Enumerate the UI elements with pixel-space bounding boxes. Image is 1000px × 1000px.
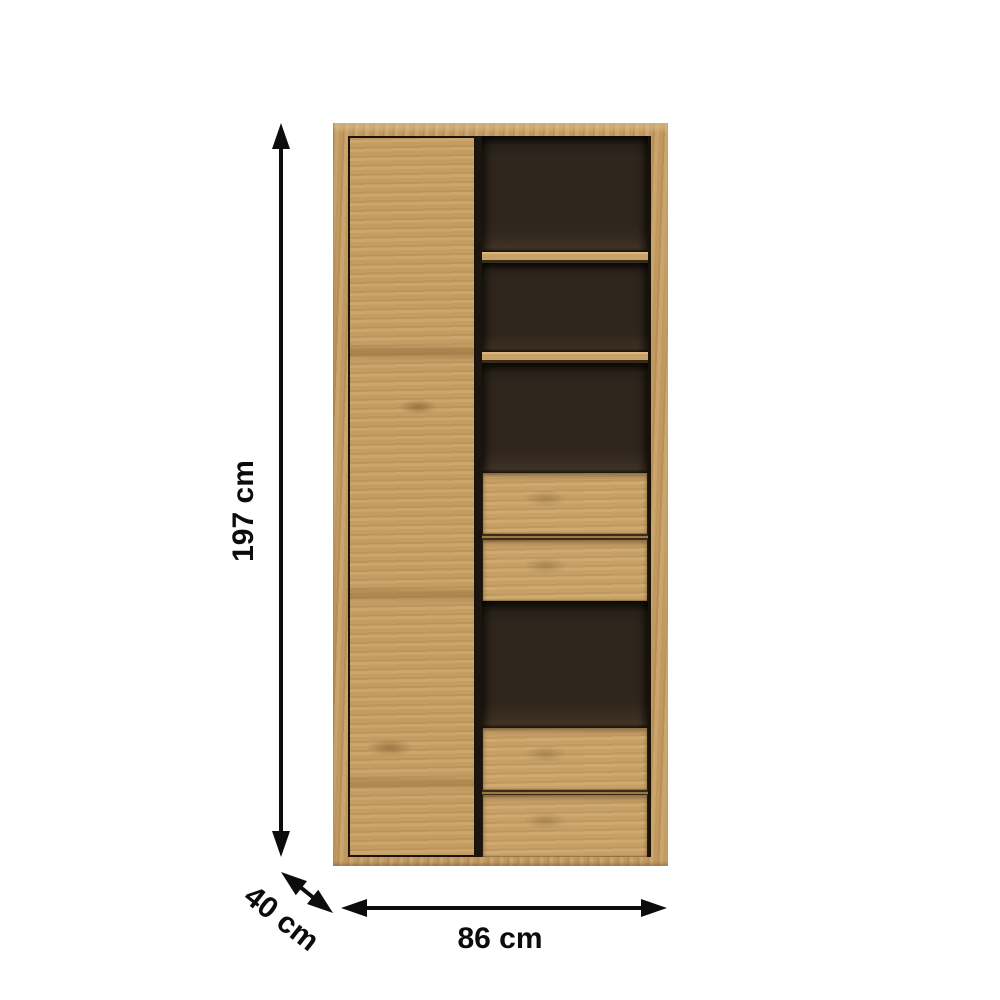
height-dimension-label: 197 cm (227, 460, 261, 562)
drawer-front (482, 473, 648, 534)
width-dimension-label: 86 cm (457, 922, 542, 956)
height-arrow-icon (272, 123, 290, 857)
drawer-front (482, 728, 648, 790)
open-shelf-compartment (482, 136, 648, 252)
drawer-front (482, 795, 648, 857)
open-shelf-compartment (482, 601, 648, 728)
width-arrow-icon (341, 899, 667, 917)
product-dimension-diagram: 197 cm 40 cm 86 cm (0, 0, 1000, 1000)
cabinet-door-panel (348, 136, 476, 857)
wooden-shelf (482, 252, 648, 263)
cabinet-inner-edge (648, 136, 651, 857)
cabinet (333, 123, 668, 866)
shelf-drawer-column (482, 136, 648, 857)
wooden-shelf (482, 352, 648, 363)
drawer-front (482, 540, 648, 601)
open-shelf-compartment (482, 363, 648, 473)
open-shelf-compartment (482, 263, 648, 352)
depth-dimension-label: 40 cm (237, 879, 325, 958)
